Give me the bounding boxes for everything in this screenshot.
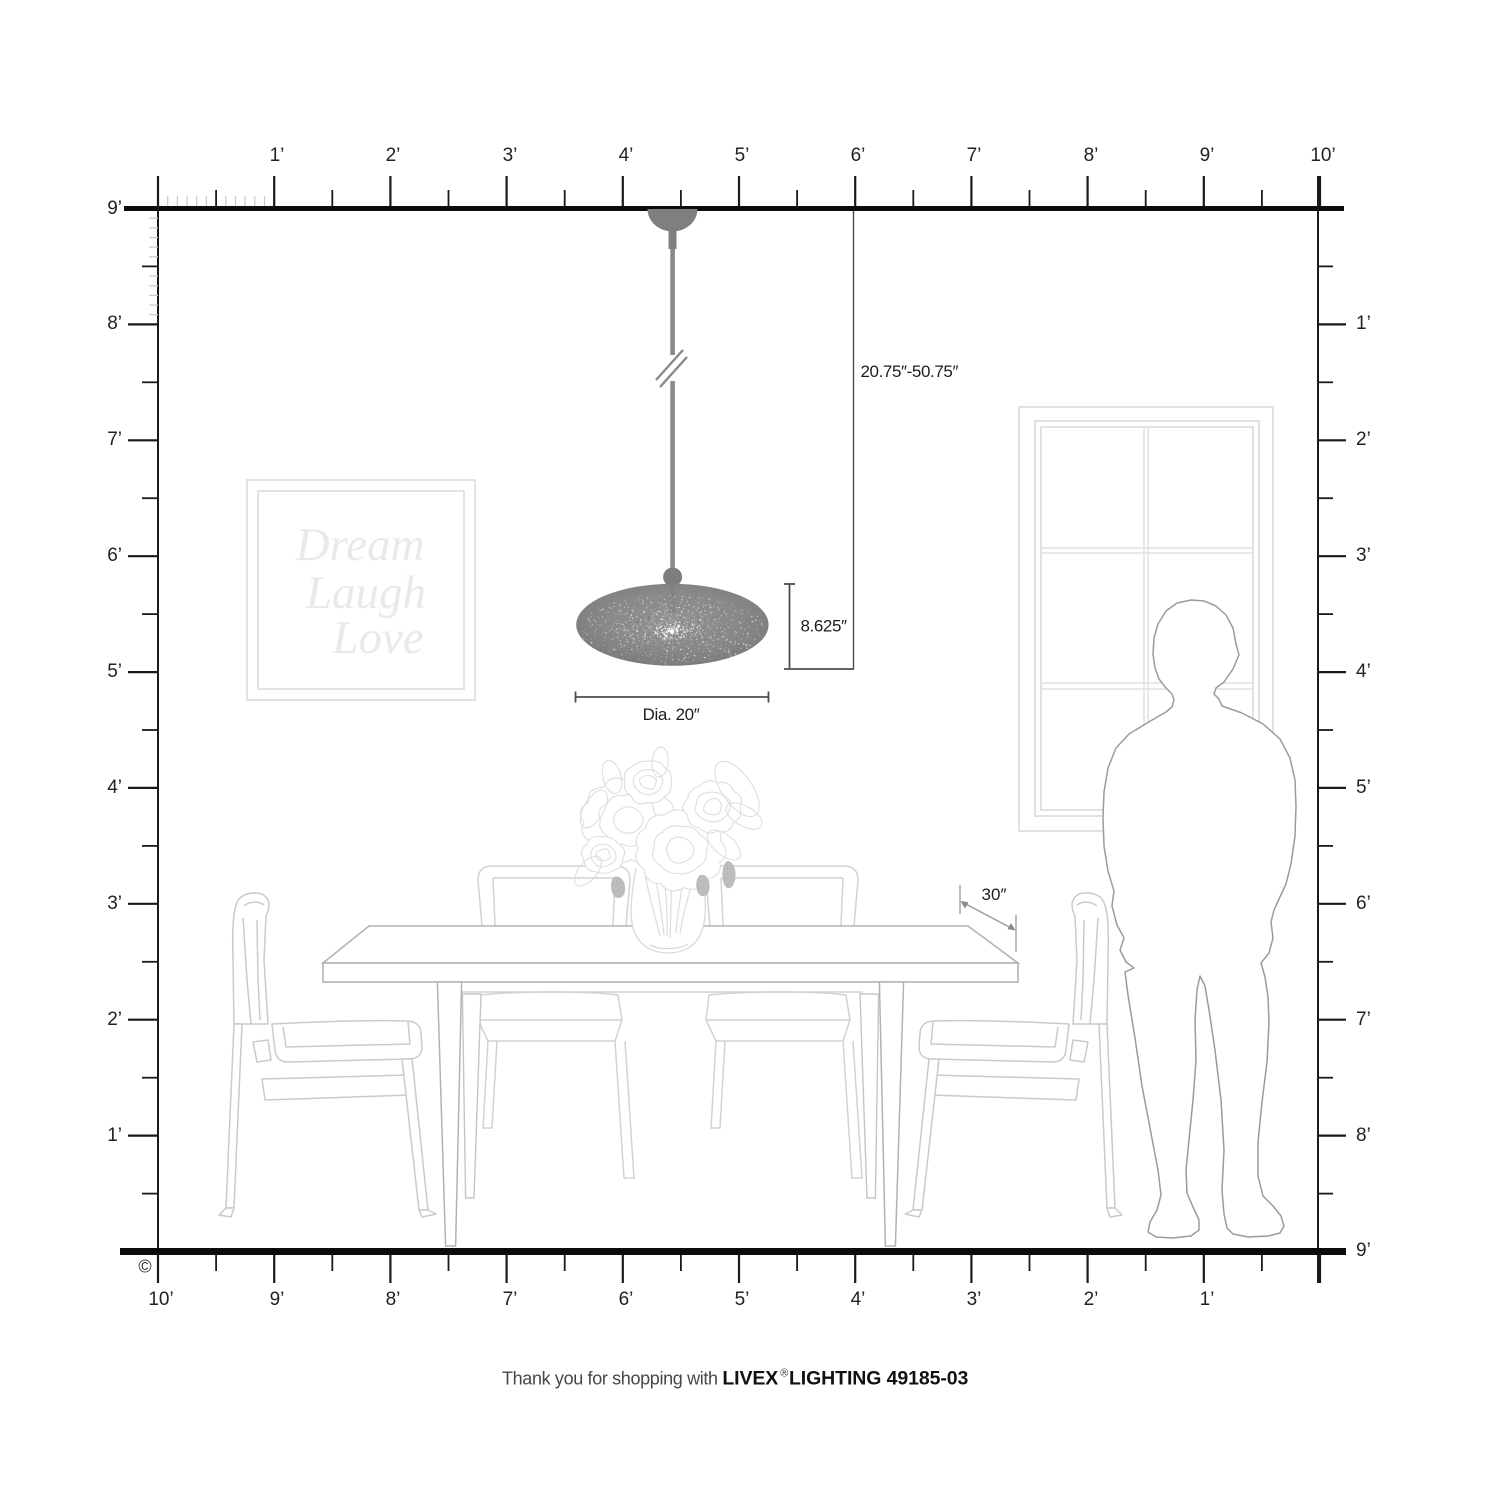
svg-text:1’: 1’ (270, 145, 285, 166)
svg-text:6’: 6’ (107, 545, 122, 566)
svg-text:3’: 3’ (503, 145, 518, 166)
svg-text:3’: 3’ (107, 893, 122, 914)
svg-text:8’: 8’ (386, 1289, 401, 1310)
svg-text:6’: 6’ (619, 1289, 634, 1310)
svg-text:©: © (138, 1257, 151, 1277)
svg-text:10’: 10’ (148, 1289, 173, 1310)
svg-text:8’: 8’ (107, 313, 122, 334)
svg-text:9’: 9’ (1200, 145, 1215, 166)
svg-text:4’: 4’ (1356, 661, 1371, 682)
svg-text:3’: 3’ (967, 1289, 982, 1310)
svg-text:8’: 8’ (1356, 1125, 1371, 1146)
svg-text:Dream: Dream (295, 519, 425, 571)
svg-text:4’: 4’ (107, 777, 122, 798)
svg-text:10’: 10’ (1310, 145, 1335, 166)
svg-text:5’: 5’ (735, 145, 750, 166)
svg-text:2’: 2’ (386, 145, 401, 166)
svg-text:2’: 2’ (1084, 1289, 1099, 1310)
svg-text:9’: 9’ (1356, 1240, 1371, 1261)
svg-text:5’: 5’ (1356, 777, 1371, 798)
svg-text:3’: 3’ (1356, 545, 1371, 566)
svg-text:7’: 7’ (107, 429, 122, 450)
svg-text:8’: 8’ (1084, 145, 1099, 166)
svg-text:6’: 6’ (851, 145, 866, 166)
svg-text:Thank you for shopping with LI: Thank you for shopping with LIVEX®LIGHTI… (502, 1368, 969, 1390)
svg-text:Love: Love (331, 612, 423, 664)
svg-text:7’: 7’ (503, 1289, 518, 1310)
svg-text:9’: 9’ (107, 198, 122, 219)
svg-text:1’: 1’ (1356, 313, 1371, 334)
svg-text:1’: 1’ (1200, 1289, 1215, 1310)
svg-text:20.75″-50.75″: 20.75″-50.75″ (861, 362, 959, 381)
svg-text:30″: 30″ (982, 885, 1007, 904)
svg-text:2’: 2’ (107, 1009, 122, 1030)
svg-text:9’: 9’ (270, 1289, 285, 1310)
svg-text:8.625″: 8.625″ (801, 617, 848, 636)
svg-text:7’: 7’ (967, 145, 982, 166)
svg-text:Dia. 20″: Dia. 20″ (643, 705, 700, 724)
svg-text:7’: 7’ (1356, 1009, 1371, 1030)
svg-text:2’: 2’ (1356, 429, 1371, 450)
svg-text:1’: 1’ (107, 1125, 122, 1146)
svg-text:4’: 4’ (619, 145, 634, 166)
svg-text:5’: 5’ (735, 1289, 750, 1310)
svg-text:6’: 6’ (1356, 893, 1371, 914)
svg-text:5’: 5’ (107, 661, 122, 682)
svg-text:4’: 4’ (851, 1289, 866, 1310)
